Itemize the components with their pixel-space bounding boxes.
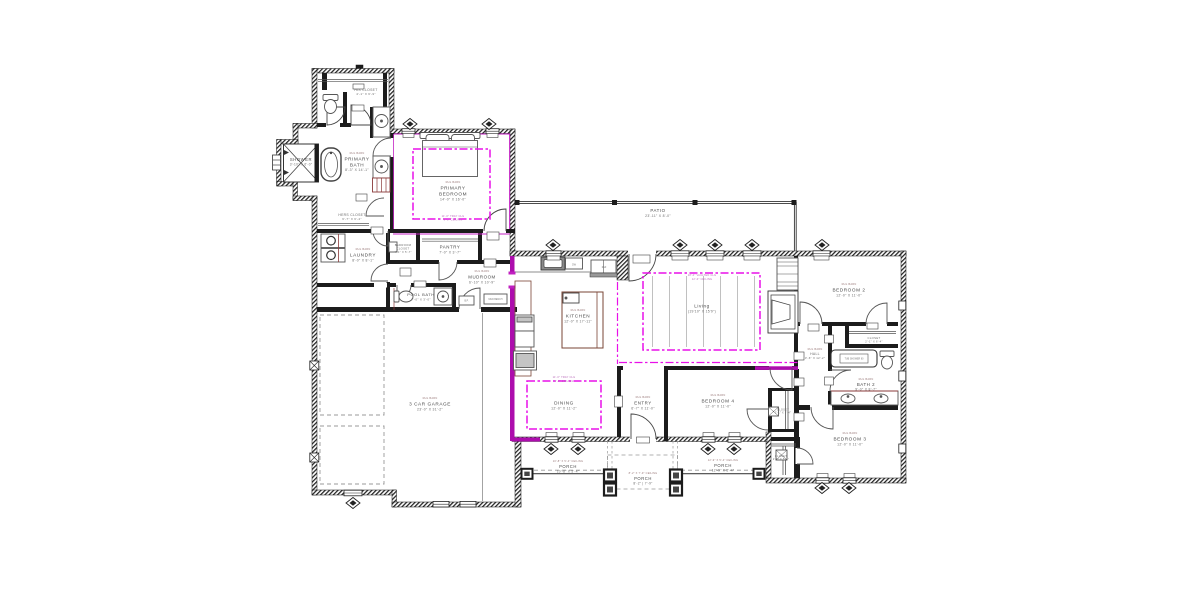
- svg-text:6'-7" X 6'-4": 6'-7" X 6'-4": [342, 217, 362, 221]
- svg-text:4'-1" X 6'-9": 4'-1" X 6'-9": [356, 92, 376, 96]
- svg-text:14'-0" X 16'-0": 14'-0" X 16'-0": [440, 198, 466, 202]
- svg-text:12'-9" X 5'-4" CEILING: 12'-9" X 5'-4" CEILING: [708, 458, 738, 462]
- svg-text:PORCH: PORCH: [559, 464, 577, 469]
- svg-text:RLG BARN: RLG BARN: [475, 269, 490, 273]
- svg-text:3'-6" X 12'-2": 3'-6" X 12'-2": [805, 356, 825, 360]
- svg-text:8'-3" X 14'-1": 8'-3" X 14'-1": [345, 168, 369, 172]
- svg-text:Living: Living: [694, 304, 710, 309]
- svg-text:8'-2" X 7'-9" CEILING: 8'-2" X 7'-9" CEILING: [629, 471, 658, 475]
- svg-text:PRIMARY: PRIMARY: [344, 157, 369, 162]
- svg-text:2'-1" X 5'-4": 2'-1" X 5'-4": [773, 458, 789, 461]
- svg-text:12'-0" X 11'-0": 12'-0" X 11'-0": [836, 294, 862, 298]
- svg-text:11'-0" TRAY CLG: 11'-0" TRAY CLG: [442, 214, 465, 218]
- svg-text:CLOSET: CLOSET: [868, 336, 881, 340]
- svg-text:LAUNDRY: LAUNDRY: [350, 253, 376, 258]
- svg-text:RLG BARN: RLG BARN: [356, 247, 371, 251]
- svg-text:RLG BARN: RLG BARN: [843, 431, 858, 435]
- svg-text:12'-0" X 11'-0": 12'-0" X 11'-0": [837, 443, 863, 447]
- svg-text:RLG BARN: RLG BARN: [636, 395, 651, 399]
- svg-text:SHOWER: SHOWER: [290, 157, 312, 162]
- svg-text:B.P.: B.P.: [464, 301, 468, 303]
- svg-text:18'-0" VAULTED CLG: 18'-0" VAULTED CLG: [688, 273, 717, 277]
- svg-text:12'-0" X 11'-2": 12'-0" X 11'-2": [551, 407, 577, 411]
- svg-text:12'-0" X 17'-11": 12'-0" X 17'-11": [564, 320, 592, 324]
- svg-text:9'-0" CEILING: 9'-0" CEILING: [555, 379, 574, 383]
- svg-text:23'-0" X 31'-2": 23'-0" X 31'-2": [417, 408, 443, 412]
- svg-text:10'-8" X 5'-4": 10'-8" X 5'-4": [557, 470, 580, 474]
- svg-text:9'-0" CEILING: 9'-0" CEILING: [444, 218, 463, 222]
- svg-text:RLG BARN: RLG BARN: [350, 151, 365, 155]
- svg-text:CLOSET: CLOSET: [397, 247, 410, 251]
- svg-text:POOL BATH: POOL BATH: [407, 292, 434, 297]
- svg-text:KITCHEN: KITCHEN: [566, 314, 590, 319]
- svg-text:8'-0" X 8'-1": 8'-0" X 8'-1": [352, 259, 374, 263]
- svg-text:PRIMARY: PRIMARY: [440, 186, 465, 191]
- svg-text:BEDROOM: BEDROOM: [439, 192, 467, 197]
- svg-text:2'-1" X 6'-4": 2'-1" X 6'-4": [865, 340, 882, 344]
- svg-text:3'-10" X 6'-0": 3'-10" X 6'-0": [290, 163, 313, 167]
- svg-text:9'-0" X 8'-7": 9'-0" X 8'-7": [855, 388, 877, 392]
- svg-text:12'-9" X 5'-4": 12'-9" X 5'-4": [712, 469, 735, 473]
- svg-text:2'-1" X 5'-4": 2'-1" X 5'-4": [775, 412, 791, 415]
- svg-text:RLG BARN: RLG BARN: [808, 347, 823, 351]
- svg-text:7'-0" X 3'-0": 7'-0" X 3'-0": [411, 298, 431, 302]
- svg-text:MUD BENCH: MUD BENCH: [489, 299, 503, 301]
- svg-text:BEDROOM 4: BEDROOM 4: [701, 399, 734, 404]
- svg-text:11'-0" TRAY CLG: 11'-0" TRAY CLG: [553, 375, 576, 379]
- svg-text:PORCH: PORCH: [634, 476, 652, 481]
- svg-text:6'-7" X 11'-0": 6'-7" X 11'-0": [631, 407, 655, 411]
- svg-text:BEDROOM 2: BEDROOM 2: [832, 288, 865, 293]
- svg-text:RLG BARN: RLG BARN: [571, 308, 586, 312]
- svg-text:23'-11" X 8'-0": 23'-11" X 8'-0": [645, 214, 671, 218]
- svg-text:BATH 2: BATH 2: [857, 382, 875, 387]
- svg-text:10'-8" X 5'-4" CEILING: 10'-8" X 5'-4" CEILING: [553, 459, 583, 463]
- svg-text:3 CAR GARAGE: 3 CAR GARAGE: [409, 402, 451, 407]
- svg-text:6'-10" X 10'-9": 6'-10" X 10'-9": [469, 281, 495, 285]
- svg-text:DINING: DINING: [554, 401, 574, 406]
- svg-text:ENTRY: ENTRY: [634, 401, 652, 406]
- svg-text:RLG BARN: RLG BARN: [423, 396, 438, 400]
- svg-text:8'-2" | 7'-9": 8'-2" | 7'-9": [633, 482, 652, 486]
- svg-text:BATH: BATH: [350, 163, 364, 168]
- svg-text:MUDROOM: MUDROOM: [468, 275, 496, 280]
- svg-text:PATIO: PATIO: [650, 208, 665, 213]
- svg-text:(19'10" X 15'9"): (19'10" X 15'9"): [688, 310, 716, 314]
- svg-text:TUB SHOWER 60: TUB SHOWER 60: [845, 359, 864, 361]
- svg-text:RLG BARN: RLG BARN: [859, 377, 874, 381]
- svg-text:4'-1" X 5'-7": 4'-1" X 5'-7": [394, 250, 411, 254]
- svg-text:REF: REF: [602, 267, 607, 269]
- svg-text:RLG BARN: RLG BARN: [446, 180, 461, 184]
- svg-text:BEDROOM 3: BEDROOM 3: [833, 437, 866, 442]
- svg-text:PANTRY: PANTRY: [440, 245, 461, 250]
- svg-text:7'-0" X 3'-7": 7'-0" X 3'-7": [439, 251, 461, 255]
- svg-text:12'-0" CEILING: 12'-0" CEILING: [692, 277, 713, 281]
- svg-text:RLG BARN: RLG BARN: [842, 282, 857, 286]
- svg-text:PORCH: PORCH: [714, 463, 732, 468]
- svg-text:RLG BARN: RLG BARN: [711, 393, 726, 397]
- svg-text:12'-0" X 11'-0": 12'-0" X 11'-0": [705, 405, 731, 409]
